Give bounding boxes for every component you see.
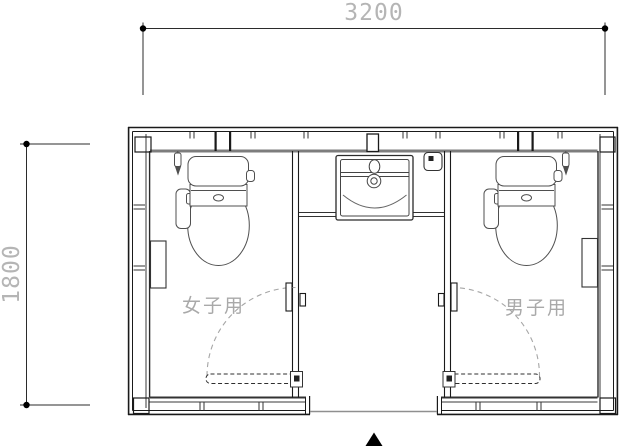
- dimension-dot: [23, 402, 29, 408]
- toilet-right: [484, 151, 569, 266]
- faucet-handle: [369, 160, 380, 174]
- room-label-womens: 女子用: [182, 295, 245, 317]
- dimension-top: [140, 23, 608, 96]
- floor-plan-canvas: 3200 1800: [0, 0, 623, 447]
- wall-post: [532, 132, 534, 152]
- entrance-marker-icon: [366, 433, 383, 447]
- door-latch: [439, 294, 445, 307]
- door-panel-open: [206, 374, 296, 384]
- corner-block-top-right: [600, 137, 615, 152]
- dimension-dot: [23, 141, 29, 147]
- door-hinge-pin: [447, 376, 453, 382]
- soap-dispenser-button: [429, 156, 434, 161]
- toilet-seat-button: [522, 195, 532, 201]
- soap-dispenser: [424, 153, 442, 171]
- wall-post: [517, 132, 519, 152]
- partition-left: [293, 151, 299, 398]
- door-latch: [300, 294, 306, 307]
- paper-holder-right: [582, 239, 598, 288]
- flush-knob: [247, 171, 255, 182]
- sink-alcove: [299, 153, 444, 221]
- door-jamb-hardware: [451, 283, 457, 311]
- door-jamb-hardware: [286, 283, 292, 311]
- dimension-dot: [602, 25, 608, 31]
- paper-holder-left: [151, 241, 167, 288]
- faucet-spout: [367, 174, 381, 188]
- left-dimension-label: 1800: [0, 244, 25, 303]
- water-valve-tip: [176, 167, 181, 175]
- floor-plan-drawing: 3200 1800: [0, 0, 623, 447]
- door-hinge-pin: [294, 376, 300, 382]
- water-valve: [563, 153, 570, 167]
- top-wall-center-connector: [367, 134, 379, 152]
- dimension-dot: [140, 25, 146, 31]
- top-dimension-label: 3200: [344, 0, 403, 26]
- toilet-tank: [496, 157, 557, 187]
- room-label-mens: 男子用: [505, 297, 568, 319]
- water-valve-tip: [564, 167, 569, 175]
- corner-block-top-left: [135, 137, 151, 152]
- wall-post: [215, 132, 217, 152]
- dimension-left: [20, 141, 90, 408]
- toilet-seat-button: [214, 195, 224, 201]
- corner-block-bottom-left: [134, 398, 150, 414]
- wall-post: [229, 132, 231, 152]
- water-valve: [175, 153, 182, 167]
- flush-knob: [554, 171, 562, 182]
- toilet-left: [175, 151, 255, 266]
- bottom-wall-panel-ticks: [200, 402, 541, 411]
- door-panel-open: [450, 374, 540, 384]
- partition-right: [445, 151, 451, 398]
- toilet-tank: [188, 157, 249, 187]
